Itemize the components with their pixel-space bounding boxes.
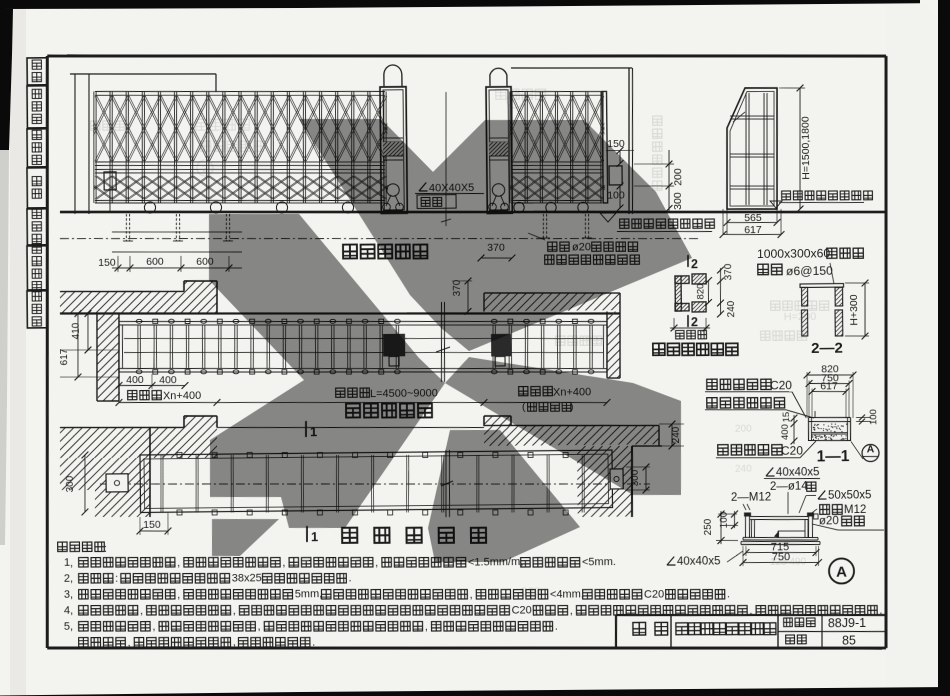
svg-text:,: , — [233, 605, 236, 617]
svg-text:1—1: 1—1 — [817, 448, 850, 465]
svg-text:200: 200 — [672, 168, 684, 186]
svg-text:38x25: 38x25 — [232, 572, 262, 584]
svg-text:370: 370 — [723, 263, 734, 280]
svg-text:2: 2 — [691, 315, 698, 329]
svg-text:ø6@150: ø6@150 — [786, 264, 833, 278]
svg-text:40x40x5: 40x40x5 — [677, 556, 721, 568]
svg-text:.: . — [348, 572, 351, 584]
svg-text:2,: 2, — [64, 573, 73, 585]
svg-text:750: 750 — [772, 551, 790, 563]
svg-text:820: 820 — [695, 284, 706, 300]
svg-text:2—ø14: 2—ø14 — [770, 481, 808, 493]
svg-text:C20: C20 — [770, 378, 792, 392]
svg-text:150: 150 — [98, 257, 116, 269]
svg-text:400: 400 — [780, 424, 791, 440]
svg-text:,: , — [152, 621, 155, 633]
svg-text:2—2: 2—2 — [811, 340, 843, 357]
svg-text:H+300: H+300 — [848, 294, 860, 326]
svg-text:3,: 3, — [64, 589, 73, 601]
svg-text:4,: 4, — [64, 605, 73, 617]
svg-text:,: , — [177, 589, 180, 601]
svg-text:617: 617 — [59, 348, 70, 365]
svg-text:240: 240 — [726, 300, 737, 317]
svg-text:M12: M12 — [844, 504, 866, 516]
svg-text:600: 600 — [146, 256, 164, 268]
svg-text:400: 400 — [126, 374, 144, 386]
svg-text:410: 410 — [71, 322, 82, 339]
svg-text:2: 2 — [691, 257, 698, 271]
svg-text:C20: C20 — [511, 604, 531, 616]
svg-text:,: , — [257, 621, 260, 633]
svg-text:<4mm,: <4mm, — [550, 588, 584, 600]
svg-text:85: 85 — [842, 633, 856, 647]
svg-text:,: , — [470, 589, 473, 601]
svg-text:,: , — [140, 605, 143, 617]
svg-text:C20: C20 — [781, 444, 803, 458]
svg-text:,: , — [425, 621, 428, 633]
svg-text:,: , — [70, 557, 73, 569]
svg-text:1: 1 — [311, 529, 318, 544]
svg-text:617: 617 — [820, 380, 838, 392]
svg-text:400: 400 — [159, 374, 177, 386]
svg-text:,: , — [233, 636, 236, 648]
svg-text:15: 15 — [781, 412, 792, 423]
svg-text:88J9-1: 88J9-1 — [828, 616, 866, 630]
svg-text:150: 150 — [143, 519, 161, 531]
svg-text:A: A — [836, 563, 847, 580]
svg-text:,: , — [127, 637, 130, 649]
svg-text:5,: 5, — [64, 621, 73, 633]
svg-text:617: 617 — [744, 224, 762, 236]
svg-text:,: , — [177, 557, 180, 569]
svg-text:240: 240 — [735, 464, 752, 475]
svg-text::: : — [115, 573, 118, 585]
svg-text:.: . — [727, 588, 730, 600]
svg-text:C20: C20 — [644, 588, 664, 600]
svg-text:100: 100 — [868, 409, 879, 425]
svg-text:200: 200 — [735, 424, 752, 435]
svg-text:2—M12: 2—M12 — [731, 492, 771, 504]
svg-text:,: , — [282, 557, 285, 569]
svg-text:.: . — [555, 620, 558, 632]
svg-text:300: 300 — [65, 475, 76, 492]
svg-text:ø20: ø20 — [819, 515, 839, 527]
svg-text:40x40x5: 40x40x5 — [776, 467, 820, 479]
svg-text:50x50x5: 50x50x5 — [828, 490, 872, 502]
svg-text:,: , — [570, 605, 573, 617]
svg-text:Xn+400: Xn+400 — [163, 390, 201, 402]
svg-text:H=1500,1800: H=1500,1800 — [800, 116, 813, 180]
svg-text:<5mm.: <5mm. — [582, 556, 616, 568]
svg-text::: : — [104, 543, 107, 555]
svg-text:565: 565 — [744, 212, 762, 224]
svg-text:A: A — [867, 443, 875, 455]
svg-text:H=200: H=200 — [784, 311, 817, 323]
svg-text:250: 250 — [703, 518, 714, 535]
svg-text:.: . — [312, 636, 315, 648]
svg-text:,: , — [375, 557, 378, 569]
svg-text:1000x300x60: 1000x300x60 — [757, 246, 831, 261]
svg-text:300: 300 — [672, 192, 684, 210]
svg-text:5mm,: 5mm, — [295, 588, 323, 600]
